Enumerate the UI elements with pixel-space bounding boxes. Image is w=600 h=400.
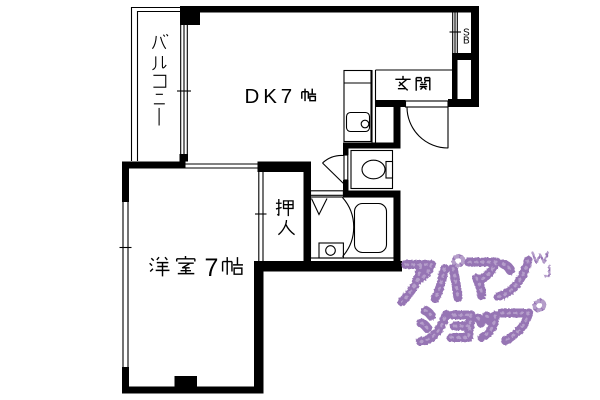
svg-text:B: B bbox=[463, 36, 470, 47]
svg-text:7: 7 bbox=[205, 254, 219, 282]
svg-text:DK7: DK7 bbox=[245, 85, 297, 108]
